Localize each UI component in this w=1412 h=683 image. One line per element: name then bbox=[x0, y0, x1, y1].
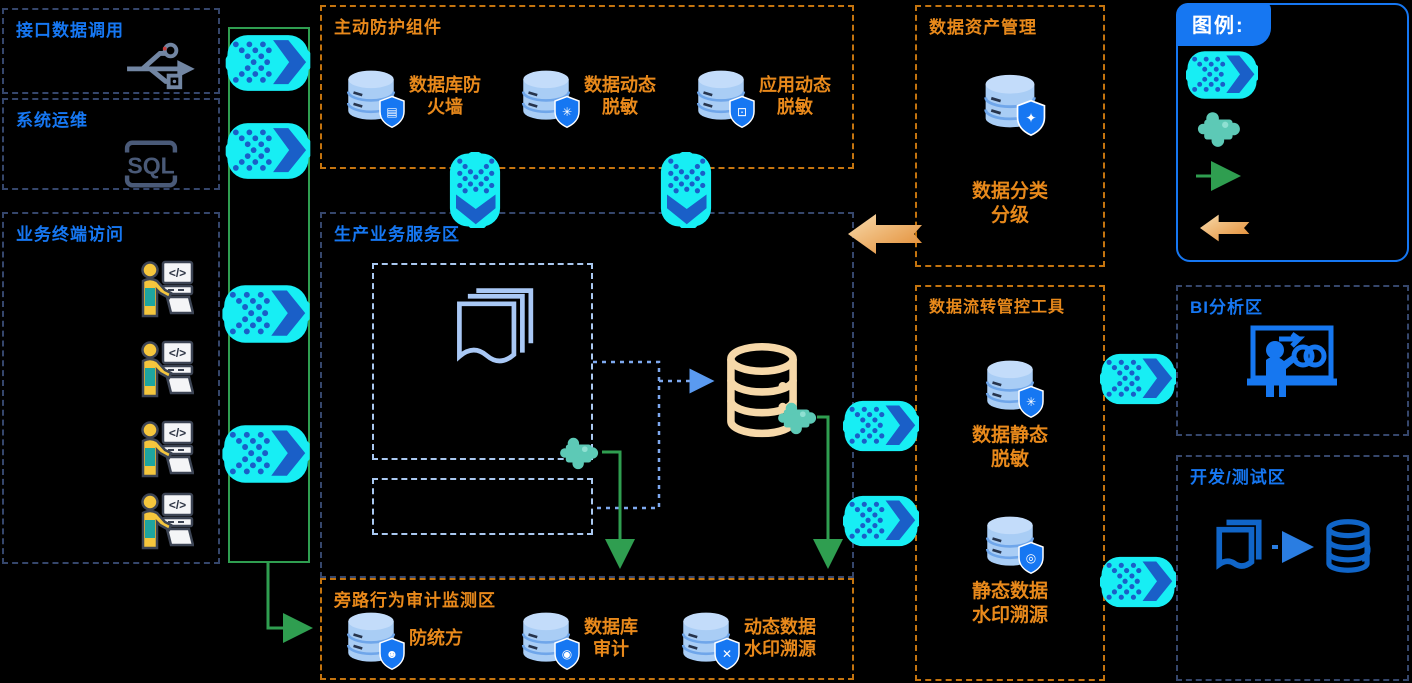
bi-presenter-icon bbox=[1246, 322, 1338, 414]
workstation-user-icon bbox=[136, 420, 194, 478]
data-flow-arrow-icon bbox=[224, 118, 312, 184]
svg-text:⊡: ⊡ bbox=[737, 105, 747, 119]
devtest-documents-icon bbox=[1212, 514, 1270, 576]
zone-system-ops: 系统运维 bbox=[2, 98, 220, 190]
data-flow-arrow-icon bbox=[222, 420, 310, 488]
component-label: 数据库 审计 bbox=[584, 616, 638, 661]
db-shield-person-icon: ☻ bbox=[343, 610, 399, 666]
component-anti-stat: ☻ 防统方 bbox=[343, 610, 463, 666]
zone-title: 系统运维 bbox=[16, 106, 88, 131]
db-shield-classify-icon: ✦ bbox=[980, 72, 1040, 132]
zone-dev-test: 开发/测试区 bbox=[1176, 455, 1409, 681]
component-label: 数据库防 火墙 bbox=[409, 74, 481, 119]
component-label: 防统方 bbox=[409, 627, 463, 650]
workstation-user-icon bbox=[136, 260, 194, 318]
svg-text:✦: ✦ bbox=[1025, 111, 1036, 126]
component-label: 数据分类 分级 bbox=[972, 180, 1048, 228]
zone-title: BI分析区 bbox=[1190, 293, 1263, 318]
architecture-diagram: </> SQL 接口数据调用 系统运维 业务终端访问 主动防护组件 bbox=[0, 0, 1412, 683]
data-flow-arrow-down-icon bbox=[437, 158, 513, 222]
svg-text:✳: ✳ bbox=[1026, 395, 1036, 409]
zone-title: 生产业务服务区 bbox=[334, 220, 460, 245]
zone-title: 数据流转管控工具 bbox=[929, 293, 1065, 317]
zone-title: 主动防护组件 bbox=[334, 13, 442, 38]
component-data-classify: ✦ 数据分类 分级 bbox=[948, 72, 1072, 228]
svg-text:☻: ☻ bbox=[386, 647, 399, 661]
sql-icon bbox=[120, 136, 182, 192]
db-shield-static-mask-icon: ✳ bbox=[982, 358, 1038, 414]
component-dynamic-watermark: ✕ 动态数据 水印溯源 bbox=[678, 610, 816, 666]
svg-text:◎: ◎ bbox=[1026, 551, 1036, 565]
usb-icon bbox=[118, 36, 198, 94]
db-shield-firewall-icon: ▤ bbox=[343, 68, 399, 124]
legend-green-arrow-icon bbox=[1194, 166, 1250, 186]
db-shield-dynamic-mask-icon: ✳ bbox=[518, 68, 574, 124]
legend-data-flow-arrow-icon bbox=[1186, 46, 1258, 104]
plugin-puzzle-icon bbox=[558, 434, 604, 472]
zone-title: 业务终端访问 bbox=[16, 220, 124, 245]
component-label: 数据静态 脱敏 bbox=[972, 424, 1048, 472]
data-flow-arrow-down-icon bbox=[648, 158, 724, 222]
devtest-database-icon bbox=[1322, 518, 1374, 574]
data-flow-arrow-icon bbox=[222, 280, 310, 348]
component-label: 数据动态 脱敏 bbox=[584, 74, 656, 119]
component-app-mask: ⊡ 应用动态 脱敏 bbox=[693, 68, 831, 124]
orange-arrow-icon bbox=[848, 212, 926, 256]
legend-header: 图例: bbox=[1176, 3, 1271, 46]
component-dynamic-mask: ✳ 数据动态 脱敏 bbox=[518, 68, 656, 124]
production-sub-rect bbox=[372, 478, 593, 535]
component-label: 静态数据 水印溯源 bbox=[972, 580, 1048, 628]
plugin-puzzle-icon bbox=[776, 399, 822, 437]
db-shield-app-mask-icon: ⊡ bbox=[693, 68, 749, 124]
zone-title: 数据资产管理 bbox=[929, 13, 1037, 38]
db-shield-trace-icon: ◎ bbox=[982, 514, 1038, 570]
workstation-user-icon bbox=[136, 492, 194, 550]
zone-title: 开发/测试区 bbox=[1190, 463, 1286, 488]
component-label: 动态数据 水印溯源 bbox=[744, 616, 816, 661]
svg-text:✳: ✳ bbox=[562, 105, 572, 119]
component-label: 应用动态 脱敏 bbox=[759, 74, 831, 119]
documents-icon bbox=[450, 285, 544, 379]
component-static-watermark: ◎ 静态数据 水印溯源 bbox=[948, 514, 1072, 628]
data-flow-arrow-icon bbox=[843, 392, 919, 460]
legend-plugin-puzzle-icon bbox=[1196, 108, 1246, 150]
component-db-audit: ◉ 数据库 审计 bbox=[518, 610, 638, 666]
legend-orange-arrow-icon bbox=[1200, 212, 1252, 244]
data-flow-arrow-icon bbox=[224, 30, 312, 96]
svg-text:◉: ◉ bbox=[562, 647, 572, 661]
data-flow-arrow-icon bbox=[1100, 548, 1176, 616]
data-flow-arrow-icon bbox=[1100, 345, 1176, 413]
svg-text:▤: ▤ bbox=[386, 105, 397, 119]
data-flow-arrow-icon bbox=[843, 487, 919, 555]
db-shield-audit-icon: ◉ bbox=[518, 610, 574, 666]
svg-text:✕: ✕ bbox=[722, 647, 732, 661]
workstation-user-icon bbox=[136, 340, 194, 398]
component-static-mask: ✳ 数据静态 脱敏 bbox=[948, 358, 1072, 472]
zone-title: 旁路行为审计监测区 bbox=[334, 586, 496, 611]
zone-title: 接口数据调用 bbox=[16, 16, 124, 41]
db-shield-watermark-icon: ✕ bbox=[678, 610, 734, 666]
component-db-firewall: ▤ 数据库防 火墙 bbox=[343, 68, 481, 124]
